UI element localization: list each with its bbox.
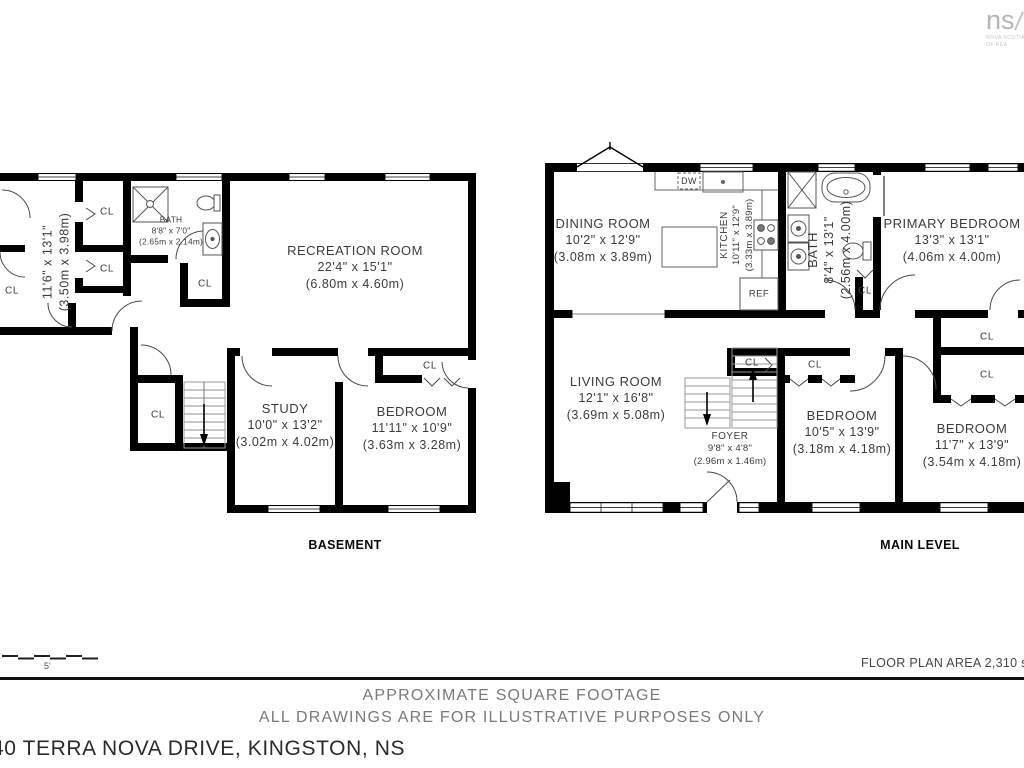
closet-label: CL [100,207,114,218]
basement-sink-icon [203,223,222,255]
closet-label: CL [100,264,114,275]
brand-logo: ns NOVA SCOTIA ASSOCIATION OF REA [986,7,1024,48]
room-label-basement-bedroom: BEDROOM 11'11" x 10'9" (3.63m x 3.28m) [363,403,462,453]
refrigerator-label: REF [749,289,769,300]
room-label-basement-bath: BATH 8'8" x 7'0" (2.65m x 2.14m) [139,214,203,247]
closet-label: CL [5,286,19,297]
basement-stairs [184,382,225,448]
footer-divider [0,677,1024,680]
brand-logo-subtext2: OF REA [986,43,1024,48]
basement-windows [38,174,440,513]
bay-window [577,142,643,171]
property-address: 40 TERRA NOVA DRIVE, KINGSTON, NS [0,737,405,761]
room-label-study: STUDY 10'0" x 13'2" (3.02m x 4.02m) [236,400,335,450]
room-label-dining: DINING ROOM 10'2" x 12'9" (3.08m x 3.89m… [554,215,653,265]
closet-label: CL [980,370,994,381]
closet-label: CL [808,360,822,371]
room-label-basement-left-room: 11'6" x 13'1" (3.50m x 3.98m) [40,213,73,312]
footer-disclaimer-2: ALL DRAWINGS ARE FOR ILLUSTRATIVE PURPOS… [0,709,1024,727]
room-label-kitchen: KITCHEN 10'11" x 12'9" (3.33m x 3.89m) [718,199,757,272]
brand-logo-slash [1014,11,1024,30]
bathtub-icon [822,173,870,202]
closet-label: CL [423,361,437,372]
room-label-primary-bedroom: PRIMARY BEDROOM 13'3" x 13'1" (4.06m x 4… [883,215,1020,265]
closet-label: CL [980,332,994,343]
dishwasher-label: DW [681,176,697,186]
stove-icon [754,220,778,250]
scale-bar [0,650,110,666]
floor-plan-page: RECREATION ROOM 22'4" x 15'1" (6.80m x 4… [0,0,1024,768]
basement-title: BASEMENT [308,538,381,552]
basement-floor-plan [0,160,490,520]
room-label-foyer: FOYER 9'8" x 4'8" (2.96m x 1.46m) [694,430,767,469]
floor-plan-area-note: FLOOR PLAN AREA 2,310 sq.ft. [861,656,1024,670]
room-label-bedroom-3: BEDROOM 11'7" x 13'9" (3.54m x 4.18m) [923,420,1022,470]
closet-label: CL [198,279,212,290]
room-label-living: LIVING ROOM 12'1" x 16'8" (3.69m x 5.08m… [567,373,666,423]
room-label-bedroom-2: BEDROOM 10'5" x 13'9" (3.18m x 4.18m) [793,407,892,457]
closet-label: CL [745,358,759,369]
brand-logo-subtext: NOVA SCOTIA ASSOCIATION [986,36,1024,41]
closet-label: CL [151,410,165,421]
room-label-main-bath: BATH 8'4" x 13'1" (2.56m x 4.00m) [804,201,854,300]
closet-label: CL [858,286,872,297]
footer-disclaimer-1: APPROXIMATE SQUARE FOOTAGE [0,687,1024,705]
main-level-title: MAIN LEVEL [880,538,960,552]
basement-toilet-icon [197,195,220,211]
kitchen-island [662,227,717,267]
scale-bar-label: 5' [44,661,51,671]
brand-logo-mark: ns [986,5,1015,35]
room-label-recreation: RECREATION ROOM 22'4" x 15'1" (6.80m x 4… [287,242,423,292]
